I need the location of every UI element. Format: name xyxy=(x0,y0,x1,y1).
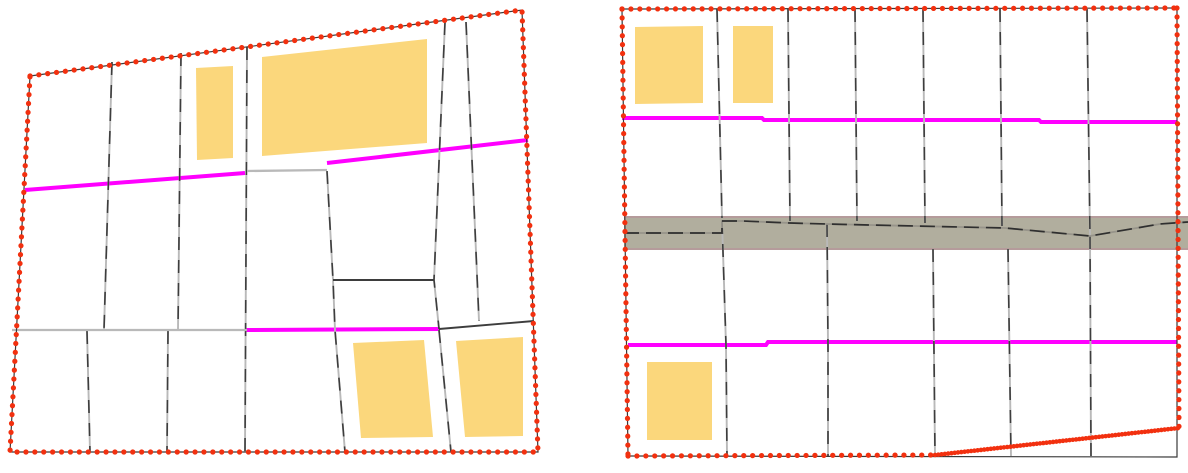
parcel-maps-svg xyxy=(0,0,1188,473)
parcel-line-dark xyxy=(439,321,534,329)
building-footprint xyxy=(733,26,773,103)
parcel-line-overlay xyxy=(434,22,445,329)
left-parcel-map xyxy=(10,10,538,452)
building-footprint xyxy=(196,66,233,160)
road-centerline xyxy=(628,342,1177,345)
building-footprint xyxy=(353,340,433,438)
road-centerline xyxy=(622,118,1177,122)
right-parcel-map xyxy=(622,8,1188,457)
survey-boundary-dense-dots xyxy=(935,428,1179,455)
road-centerline xyxy=(25,173,245,190)
building-footprint xyxy=(456,337,523,437)
road-centerline xyxy=(245,329,440,330)
parcel-line-base xyxy=(245,47,247,452)
survey-boundary-dots xyxy=(628,455,935,456)
building-footprint xyxy=(635,26,703,104)
parcel-line-light xyxy=(247,170,327,171)
building-footprint xyxy=(647,362,712,440)
cadastral-maps xyxy=(0,0,1188,473)
parcel-line-base xyxy=(104,62,112,330)
building-footprint xyxy=(262,39,427,156)
